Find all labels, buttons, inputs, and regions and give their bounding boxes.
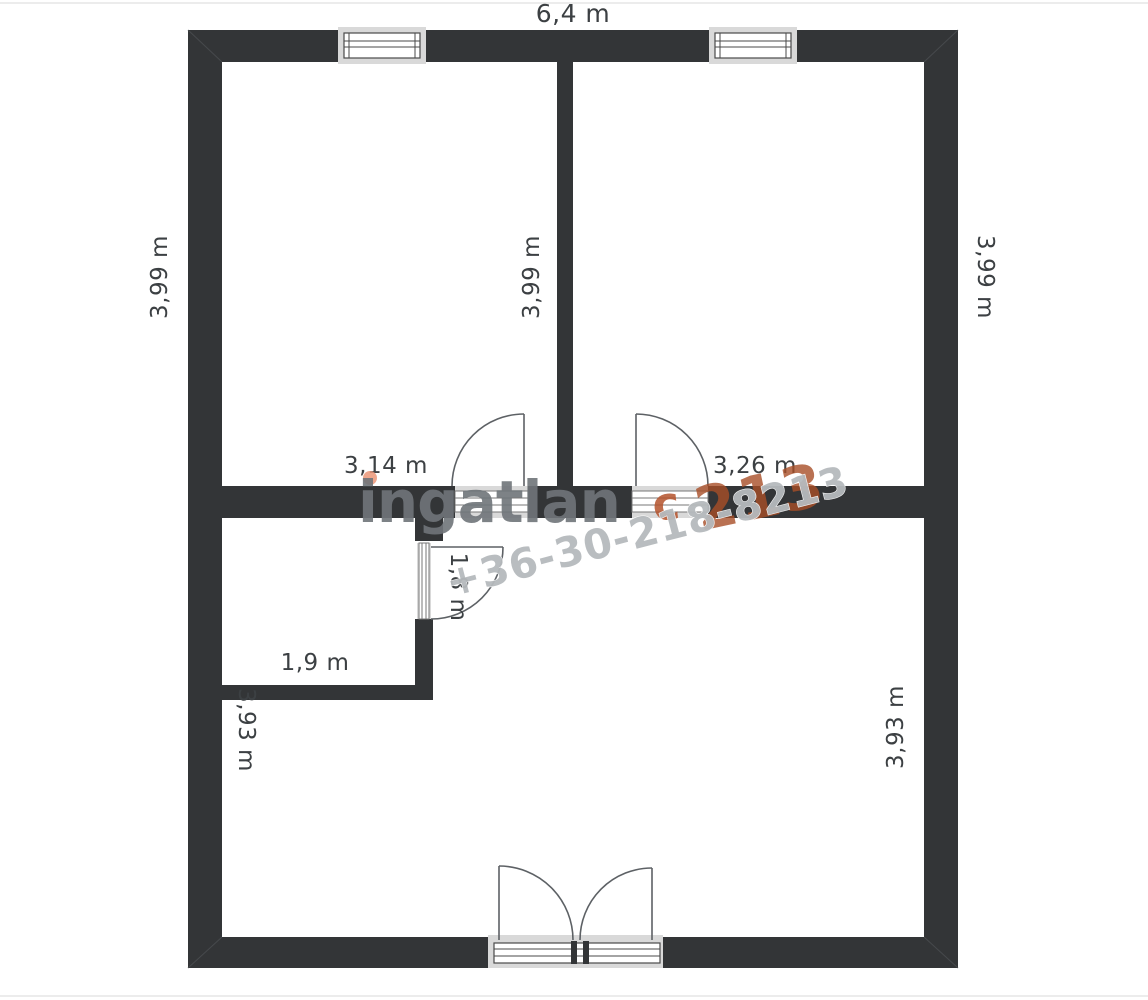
dimension-label-middle-height: 3,99 m xyxy=(519,235,545,319)
window-pane xyxy=(715,33,791,58)
dimension-label-left-height: 3,99 m xyxy=(147,235,173,319)
wall-left xyxy=(188,30,222,968)
wall-upper-room-divider xyxy=(557,62,573,486)
wall-top xyxy=(188,30,958,62)
entry-door-center-post xyxy=(583,941,589,964)
window-top-right xyxy=(709,27,797,64)
window-top-left xyxy=(338,27,426,64)
dimension-label-top-width: 6,4 m xyxy=(536,0,611,28)
wall-right xyxy=(924,30,958,968)
entry-double-door-frame xyxy=(488,935,663,968)
dimension-label-hall-left-height: 3,93 m xyxy=(233,688,259,772)
floor-plan-page: 6,4 m 3,99 m 3,99 m 3,99 m 3,14 m 3,26 m… xyxy=(0,0,1148,1000)
entry-door-center-post xyxy=(571,941,577,964)
door-jamb-closet xyxy=(417,543,431,619)
window-pane xyxy=(344,33,420,58)
dimension-label-hall-right-height: 3,93 m xyxy=(883,685,909,769)
floor-plan-drawing: 6,4 m 3,99 m 3,99 m 3,99 m 3,14 m 3,26 m… xyxy=(0,0,1148,1000)
dimension-label-right-height: 3,99 m xyxy=(972,235,998,319)
dimension-label-closet-width: 1,9 m xyxy=(281,650,350,676)
